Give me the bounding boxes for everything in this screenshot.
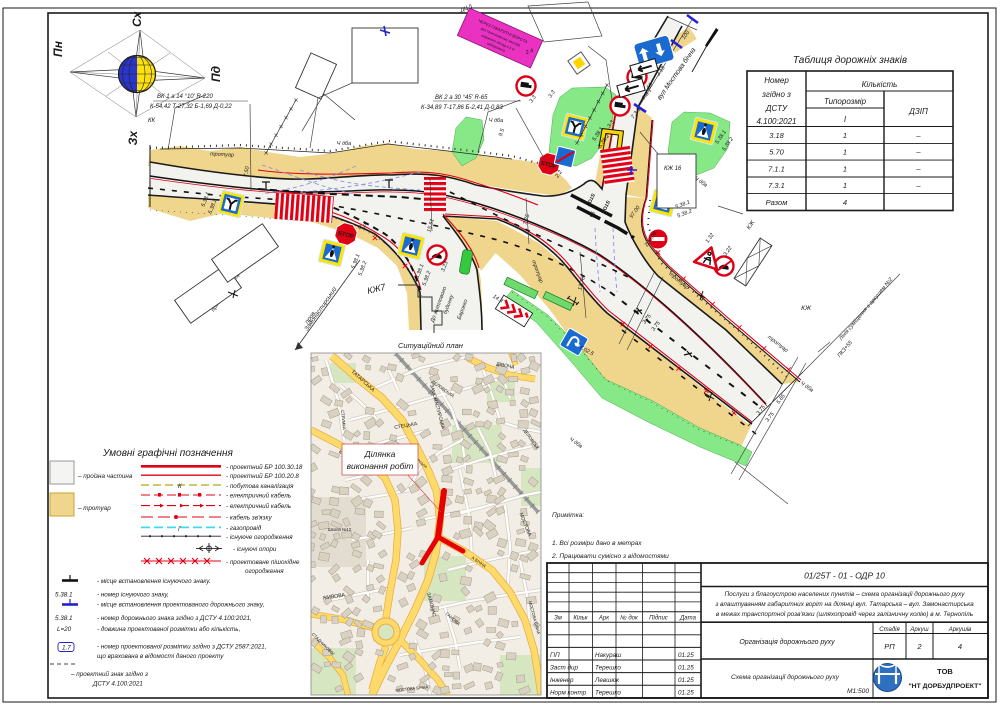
svg-text:Таблиця дорожніх знаків: Таблиця дорожніх знаків	[793, 54, 907, 66]
svg-text:Пд: Пд	[209, 66, 223, 82]
svg-text:- електричний кабель: - електричний кабель	[226, 502, 291, 510]
svg-text:М1:500: М1:500	[847, 688, 869, 695]
svg-text:Левшюк: Левшюк	[594, 677, 620, 684]
svg-text:виконання робіт: виконання робіт	[347, 461, 414, 471]
svg-text:ДСТУ 4.100:2021: ДСТУ 4.100:2021	[92, 681, 143, 688]
svg-text:7.1.1: 7.1.1	[768, 165, 785, 174]
svg-text:5.38.1: 5.38.1	[55, 592, 73, 599]
svg-text:Номер: Номер	[764, 76, 789, 85]
svg-text:ДЗІП: ДЗІП	[908, 107, 928, 116]
svg-text:2. Працювати сумісно з відомос: 2. Працювати сумісно з відомостями	[551, 552, 669, 560]
svg-text:Підпис: Підпис	[649, 616, 668, 622]
svg-text:Схема організації дорожнього р: Схема організації дорожнього руху	[731, 673, 840, 681]
svg-text:Накураш: Накураш	[595, 652, 622, 659]
svg-text:КК: КК	[148, 118, 156, 124]
svg-text:ТОВ: ТОВ	[937, 667, 953, 676]
svg-text:- місце встановлення існуючого: - місце встановлення існуючого знаку.	[97, 577, 211, 585]
svg-text:ВК 2 а 30 °45' R-65: ВК 2 а 30 °45' R-65	[435, 95, 488, 101]
svg-text:- проектний БР 100.30.18: - проектний БР 100.30.18	[226, 463, 303, 471]
svg-text:Ч дба: Ч дба	[489, 118, 503, 124]
svg-text:5.70: 5.70	[769, 148, 784, 157]
svg-text:Норм контр: Норм контр	[550, 690, 587, 697]
svg-text:4: 4	[843, 198, 847, 207]
svg-text:в межах транспортної розв'язки: в межах транспортної розв'язки (шляхопро…	[716, 610, 973, 618]
svg-text:Кількість: Кількість	[862, 80, 898, 89]
svg-text:1: 1	[843, 165, 847, 174]
svg-text:–: –	[915, 181, 921, 190]
svg-text:Сх: Сх	[130, 10, 144, 27]
svg-text:- проектний БР 100.20.8: - проектний БР 100.20.8	[226, 472, 299, 480]
svg-text:Стадія: Стадія	[879, 627, 900, 633]
svg-text:- місце встановлення проектова: - місце встановлення проектованого дорож…	[97, 601, 265, 609]
svg-text:з влаштуванням габаритних ворі: з влаштуванням габаритних воріт на ділян…	[714, 600, 974, 608]
svg-text:Дата: Дата	[679, 616, 696, 622]
svg-text:Терешко: Терешко	[595, 690, 621, 697]
svg-text:- номер проектованої розмітки: - номер проектованої розмітки згідно з Д…	[97, 643, 267, 651]
svg-text:L=20: L=20	[57, 626, 72, 633]
svg-text:К: К	[178, 484, 182, 490]
svg-text:РП: РП	[884, 642, 895, 651]
svg-text:4: 4	[958, 642, 962, 651]
svg-text:Інженер: Інженер	[550, 677, 574, 684]
svg-text:- довжина проектованої розмітк: - довжина проектованої розмітки або кіль…	[97, 625, 241, 633]
svg-text:- проектоване пішохідне: - проектоване пішохідне	[226, 558, 300, 566]
svg-text:- електричний кабель: - електричний кабель	[226, 492, 291, 500]
svg-text:7.3.1: 7.3.1	[768, 181, 785, 190]
svg-text:Аркуш: Аркуш	[909, 627, 928, 633]
svg-text:№ док: № док	[620, 615, 639, 622]
svg-text:–: –	[915, 148, 921, 157]
svg-text:01.25: 01.25	[678, 665, 694, 672]
svg-text:2: 2	[916, 642, 922, 651]
svg-text:Ч дба: Ч дба	[337, 141, 351, 147]
svg-text:1: 1	[843, 181, 847, 190]
svg-text:ВК 1 а 14 °10' R-220: ВК 1 а 14 °10' R-220	[157, 94, 213, 100]
svg-text:01.25: 01.25	[678, 690, 694, 697]
svg-text:- існуюче огородження: - існуюче огородження	[226, 533, 293, 541]
svg-text:К-54,42 Т-27,32 Б-1,69 Д-0,22: К-54,42 Т-27,32 Б-1,69 Д-0,22	[150, 104, 232, 110]
svg-text:Послуги з благоустрою населен: Послуги з благоустрою населених пунктів …	[724, 590, 965, 598]
svg-text:Разом: Разом	[766, 198, 788, 207]
svg-text:ДСТУ: ДСТУ	[765, 104, 788, 113]
svg-text:1: 1	[843, 148, 847, 157]
svg-text:що врахована в відомості даног: що врахована в відомості даного проекту	[97, 652, 224, 660]
svg-text:01.25: 01.25	[678, 677, 694, 684]
svg-text:01.25: 01.25	[678, 652, 694, 659]
svg-text:ГІП: ГІП	[550, 652, 560, 659]
svg-text:Заст дир: Заст дир	[550, 664, 578, 672]
svg-text:– тротуар: – тротуар	[77, 505, 111, 512]
svg-text:Школа №13: Школа №13	[328, 527, 352, 532]
svg-text:Ситуаційний план: Ситуаційний план	[398, 341, 463, 350]
svg-text:"НТ ДОРБУДПРОЕКТ": "НТ ДОРБУДПРОЕКТ"	[908, 683, 981, 690]
svg-text:- побутова каналізація: - побутова каналізація	[226, 482, 294, 490]
svg-text:Зм: Зм	[554, 616, 562, 622]
svg-text:– проектний знак згідно з: – проектний знак згідно з	[70, 670, 148, 678]
svg-text:Примітка:: Примітка:	[552, 511, 584, 519]
svg-text:Пн: Пн	[51, 40, 65, 57]
svg-text:Типорозмір: Типорозмір	[824, 97, 867, 106]
svg-text:Терешко: Терешко	[595, 665, 621, 672]
svg-text:огородження: огородження	[245, 567, 284, 575]
svg-text:К-34,89 Т-17,86 Б-2,41 Д-0,83: К-34,89 Т-17,86 Б-2,41 Д-0,83	[421, 105, 503, 111]
svg-text:– проїзна частина: – проїзна частина	[77, 473, 133, 480]
svg-text:Ділянка: Ділянка	[364, 449, 396, 459]
svg-text:Арк: Арк	[598, 616, 610, 622]
svg-text:01/25Т - 01 - ОДР 10: 01/25Т - 01 - ОДР 10	[804, 571, 885, 581]
svg-text:5.38.1: 5.38.1	[55, 615, 73, 622]
svg-text:1.7: 1.7	[62, 645, 71, 652]
svg-text:1. Всі розміри дано в метрах: 1. Всі розміри дано в метрах	[552, 539, 642, 547]
svg-text:Аркушів: Аркушів	[948, 627, 972, 633]
svg-text:Організація дорожнього руху: Організація дорожнього руху	[739, 638, 835, 646]
svg-text:Умовні графічні позначення: Умовні графічні позначення	[102, 447, 233, 459]
svg-text:3.18: 3.18	[769, 131, 784, 140]
svg-text:згідно з: згідно з	[761, 90, 791, 99]
svg-text:1: 1	[843, 131, 847, 140]
svg-text:Зх: Зх	[126, 130, 140, 146]
svg-text:КЖ 16: КЖ 16	[664, 166, 682, 172]
svg-text:- кабель зв'язку: - кабель зв'язку	[226, 514, 272, 522]
svg-text:КЖ: КЖ	[801, 305, 812, 312]
svg-text:- газопровід: - газопровід	[226, 524, 262, 532]
svg-text:тротуар: тротуар	[210, 151, 234, 158]
svg-text:- існуючі опори: - існуючі опори	[233, 545, 277, 553]
svg-text:–: –	[915, 131, 921, 140]
svg-text:–: –	[915, 165, 921, 174]
svg-text:Кільк: Кільк	[573, 616, 588, 622]
svg-text:- номер дорожнього знака згідн: - номер дорожнього знака згідно з ДСТУ 4…	[97, 614, 252, 622]
svg-text:4.100:2021: 4.100:2021	[756, 117, 796, 126]
svg-text:- номер існуючого знаку,: - номер існуючого знаку,	[97, 591, 169, 599]
